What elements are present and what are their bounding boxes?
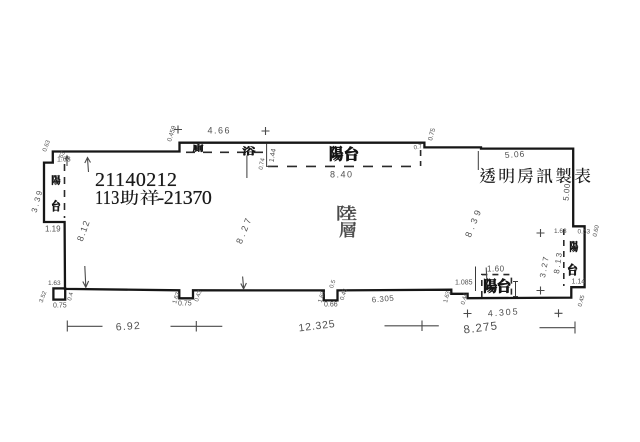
svg-text:1.60: 1.60 <box>487 265 505 274</box>
svg-text:8.275: 8.275 <box>463 320 499 336</box>
svg-text:0.63: 0.63 <box>578 229 591 236</box>
svg-text:1.63: 1.63 <box>48 280 61 287</box>
svg-text:8.27: 8.27 <box>234 214 254 245</box>
svg-text:1.19: 1.19 <box>45 225 61 234</box>
svg-text:1.14: 1.14 <box>572 279 586 286</box>
svg-text:4.305: 4.305 <box>487 306 519 318</box>
svg-text:0.75: 0.75 <box>53 303 67 310</box>
svg-text:8.13: 8.13 <box>552 250 564 274</box>
svg-text:0.45: 0.45 <box>578 294 587 307</box>
svg-text:8.40: 8.40 <box>330 170 354 180</box>
svg-text:0.459: 0.459 <box>166 125 178 143</box>
svg-text:0.7: 0.7 <box>413 144 423 151</box>
svg-text:1.085: 1.085 <box>455 280 473 287</box>
svg-text:1.63: 1.63 <box>554 228 567 235</box>
svg-text:0.66: 0.66 <box>324 302 338 309</box>
svg-text:3.52: 3.52 <box>39 290 49 304</box>
svg-text:8.39: 8.39 <box>463 205 484 238</box>
svg-text:6.305: 6.305 <box>371 294 394 305</box>
svg-text:8.12: 8.12 <box>75 218 92 242</box>
svg-text:12.325: 12.325 <box>298 318 336 334</box>
svg-text:0.4: 0.4 <box>67 291 75 301</box>
svg-text:6.92: 6.92 <box>115 320 141 334</box>
svg-text:5.06: 5.06 <box>504 149 525 160</box>
svg-text:3.27: 3.27 <box>538 254 551 278</box>
svg-text:0.74: 0.74 <box>259 157 267 170</box>
svg-text:1.44: 1.44 <box>269 148 278 163</box>
svg-text:4.66: 4.66 <box>208 126 232 136</box>
svg-text:0.75: 0.75 <box>178 301 192 308</box>
svg-text:0.5: 0.5 <box>329 279 337 289</box>
svg-text:3.39: 3.39 <box>30 188 45 214</box>
svg-text:0.75: 0.75 <box>427 127 437 141</box>
svg-text:5.00: 5.00 <box>562 183 573 201</box>
svg-text:0.63: 0.63 <box>42 139 52 153</box>
svg-text:0.60: 0.60 <box>593 224 601 237</box>
svg-text:1.63: 1.63 <box>443 290 452 303</box>
